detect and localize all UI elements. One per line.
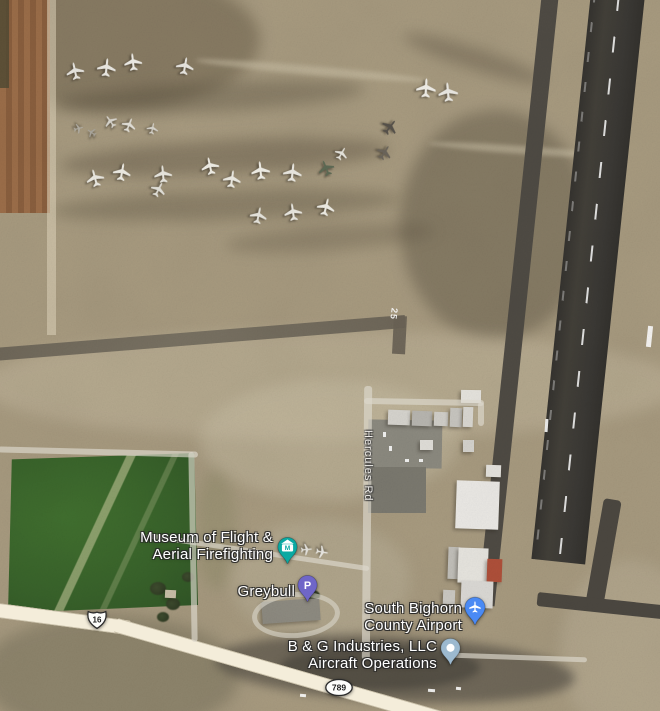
terrain-patch [54,74,365,120]
generic-poi-pin[interactable] [440,637,461,666]
building [434,412,448,426]
road-label-hercules-rd: Hercules Rd [362,430,374,502]
building [165,590,176,599]
aircraft [314,195,338,219]
pavement-mark [300,694,306,698]
map-canvas[interactable]: 25 Hercules Rd 16 [0,0,660,711]
pavement-mark [428,689,435,693]
apron-road-corner [478,402,484,426]
pavement-mark [646,326,653,347]
svg-text:789: 789 [332,682,346,692]
field-road-north [0,446,198,457]
building [388,410,411,426]
building [455,480,500,529]
poi-label-line: Museum of Flight & [55,529,273,546]
pavement-mark [405,459,409,462]
pavement-mark [456,687,461,690]
us-route-16-shield: 16 [86,610,108,630]
aircraft [83,166,107,190]
aircraft [280,160,303,183]
aircraft [377,114,402,139]
poi-label-line: Aircraft Operations [260,655,437,672]
aircraft [198,154,222,178]
tree [150,582,166,595]
old-runway [0,315,406,361]
poi-label-bg-industries[interactable]: B & G Industries, LLC Aircraft Operation… [260,638,437,672]
terrain-patch [400,25,549,92]
aircraft [71,121,84,134]
aircraft [282,201,305,224]
building [487,559,503,583]
apron [368,467,426,513]
runway-centerline [558,0,620,562]
apron-road [364,398,484,406]
aircraft [94,55,117,78]
parking-pin[interactable]: P [297,574,318,603]
terrain-patch [560,560,660,711]
pavement-mark [389,446,392,451]
terrain-patch [59,131,390,182]
poi-label-line: South Bighorn [330,600,462,617]
aircraft [122,51,144,73]
dirt-road-vertical [47,0,56,335]
bg-access-road [452,653,587,663]
museum-icon-letter: M [285,545,291,552]
dirt-track [195,56,430,85]
building [412,411,433,427]
aircraft [221,168,244,191]
aircraft [372,140,395,163]
building [463,407,474,427]
aircraft [173,54,196,77]
old-runway-stub [392,316,407,355]
poi-label-airport[interactable]: South Bighorn County Airport [330,600,462,634]
poi-label-line: B & G Industries, LLC [260,638,437,655]
svg-text:16: 16 [93,615,102,624]
poi-label-greybull[interactable]: Greybull [183,583,295,600]
dot-icon [446,644,454,652]
tree [157,612,169,622]
building [457,547,488,583]
aircraft [147,178,170,201]
poi-label-line: County Airport [330,617,462,634]
poi-label-museum[interactable]: Museum of Flight & Aerial Firefighting [55,529,273,563]
pavement-mark [419,459,423,462]
pavement-mark [383,432,386,437]
museum-pin[interactable]: M [277,536,298,565]
aircraft [152,163,174,185]
aircraft [119,115,140,136]
building [463,440,474,452]
aircraft [436,80,460,104]
building [486,465,501,478]
aircraft [100,111,121,132]
aircraft [83,124,98,139]
aircraft [299,542,313,556]
aircraft [110,160,133,183]
aircraft [247,204,270,227]
poi-label-line: Aerial Firefighting [55,546,273,563]
farm-field-edge [0,0,9,88]
aircraft [414,76,437,99]
terrain-patch [224,218,435,259]
building [420,440,433,450]
aircraft [144,120,159,135]
parking-icon: P [304,580,311,592]
tree [166,598,180,610]
aircraft [331,143,351,163]
aircraft [63,59,87,83]
aircraft [248,158,271,181]
runway-threshold-number: 25 [388,307,399,320]
airport-pin[interactable] [464,596,486,626]
state-route-789-shield: 789 [324,678,354,697]
terrain-patch [50,184,401,226]
building [450,408,463,427]
taxiway-connector [585,498,621,607]
aircraft [314,156,337,179]
